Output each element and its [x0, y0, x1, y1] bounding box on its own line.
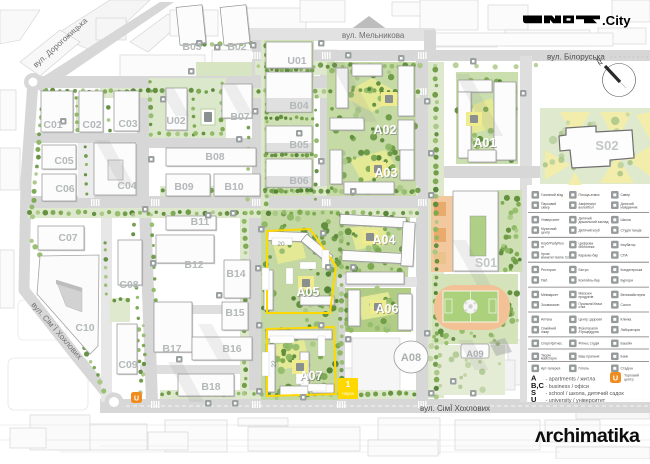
svg-text:B14: B14 [226, 268, 245, 280]
svg-text:майстерні: майстерні [541, 357, 557, 361]
svg-text:.City: .City [602, 13, 631, 28]
svg-text:Сквер: Сквер [621, 193, 631, 197]
svg-text:U02: U02 [166, 115, 185, 127]
svg-text:B10: B10 [224, 181, 243, 193]
svg-text:A03: A03 [375, 166, 398, 180]
svg-text:A06: A06 [376, 302, 399, 316]
svg-text:СПА: СПА [621, 253, 629, 257]
svg-text:C05: C05 [54, 155, 73, 167]
svg-text:S02: S02 [595, 138, 618, 153]
svg-text:Школа: Школа [621, 218, 631, 222]
svg-text:- business / офіси: - business / офіси [546, 384, 589, 390]
svg-text:Караоке-бар: Караоке-бар [579, 253, 599, 257]
svg-text:Клініка: Клініка [621, 318, 632, 322]
svg-text:продуктів: продуктів [579, 295, 594, 299]
svg-text:B04: B04 [289, 100, 308, 112]
svg-text:B09: B09 [174, 181, 193, 193]
svg-text:Басейн: Басейн [621, 342, 633, 346]
svg-text:стка: стка [579, 305, 586, 309]
svg-text:Клуб/PartyRoo: Клуб/PartyRoo [541, 242, 564, 246]
svg-text:Фітнес студія: Фітнес студія [579, 342, 600, 346]
svg-text:Аптека: Аптека [541, 318, 552, 322]
svg-text:A09: A09 [466, 349, 483, 360]
svg-text:Арт-галерея: Арт-галерея [541, 367, 560, 371]
svg-text:B03: B03 [182, 41, 201, 53]
svg-text:Веломайстерня: Веломайстерня [621, 293, 646, 297]
svg-text:Центр здоровя: Центр здоровя [579, 318, 603, 322]
svg-text:Дитячий клуб: Дитячий клуб [579, 229, 600, 233]
svg-text:черга: черга [342, 391, 354, 396]
svg-text:- school / школа, дитячий садо: - school / школа, дитячий садок [546, 390, 625, 397]
svg-text:C03: C03 [118, 118, 137, 130]
svg-text:U: U [613, 374, 618, 383]
svg-text:дошкільний заклад: дошкільний заклад [579, 220, 609, 224]
svg-text:B15: B15 [225, 307, 244, 319]
svg-text:C10: C10 [75, 322, 94, 334]
svg-text:B17: B17 [162, 343, 181, 355]
svg-text:B11: B11 [191, 216, 210, 228]
svg-text:m: m [541, 245, 544, 249]
svg-text:A07: A07 [300, 369, 323, 383]
svg-text:- university / університет: - university / університет [546, 398, 606, 404]
svg-text:вул. СімЇ Хохлових: вул. СімЇ Хохлових [420, 404, 490, 413]
svg-text:Салон: Салон [621, 303, 631, 307]
svg-text:B08: B08 [205, 151, 224, 163]
svg-text:/Процедурна: /Процедурна [579, 330, 599, 334]
svg-text:волейбол: волейбол [579, 206, 594, 210]
svg-text:- apartments / житла: - apartments / житла [546, 377, 596, 383]
svg-text:Студія танців: Студія танців [621, 229, 642, 233]
svg-text:S01: S01 [475, 256, 497, 270]
svg-text:B12: B12 [184, 259, 203, 271]
svg-text:A02: A02 [374, 123, 397, 137]
svg-text:бібліотека: бібліотека [579, 245, 595, 249]
svg-text:Університет: Університет [541, 218, 560, 222]
svg-text:Кондитерська: Кондитерська [621, 268, 643, 272]
svg-text:20: 20 [277, 241, 285, 248]
svg-text:Зоомагазин: Зоомагазин [541, 303, 559, 307]
svg-text:Інкубатор: Інкубатор [621, 243, 636, 247]
svg-text:Ресторан: Ресторан [541, 268, 556, 272]
svg-text:Головний вїзд: Головний вїзд [541, 193, 563, 197]
svg-text:Банк: Банк [621, 355, 629, 359]
svg-text:A08: A08 [401, 352, 421, 364]
svg-text:центр: центр [624, 378, 634, 382]
svg-text:Бургери: Бургери [621, 278, 634, 282]
svg-text:1: 1 [346, 380, 351, 389]
svg-text:Паб: Паб [541, 278, 547, 282]
svg-text:Коктейль-бар: Коктейль-бар [579, 278, 600, 282]
svg-text:Стадіон: Стадіон [621, 367, 633, 371]
svg-text:Ваш пральня: Ваш пральня [579, 355, 600, 359]
svg-text:Спорт/фітнес: Спорт/фітнес [541, 342, 562, 346]
svg-text:майданчик: майданчик [621, 206, 639, 210]
svg-text:B06: B06 [289, 175, 308, 187]
svg-text:ʌrchimatika: ʌrchimatika [535, 425, 641, 447]
svg-text:C01: C01 [43, 119, 62, 131]
svg-text:U01: U01 [287, 55, 306, 67]
svg-text:U: U [134, 396, 139, 403]
svg-text:A01: A01 [474, 136, 497, 150]
svg-text:лікар: лікар [541, 330, 549, 334]
svg-text:вул. Мельникова: вул. Мельникова [342, 31, 405, 40]
svg-text:A05: A05 [297, 285, 320, 299]
svg-text:Площа атмос: Площа атмос [579, 193, 601, 197]
svg-text:C09: C09 [118, 359, 137, 371]
svg-text:C07: C07 [58, 232, 77, 244]
svg-text:B16: B16 [222, 343, 241, 355]
svg-text:Лабораторія: Лабораторія [621, 328, 641, 332]
svg-text:Мінімаркет: Мінімаркет [541, 293, 559, 297]
svg-text:C02: C02 [82, 119, 101, 131]
svg-text:центр: центр [541, 231, 550, 235]
svg-text:C06: C06 [55, 183, 74, 195]
svg-text:U: U [531, 395, 536, 404]
svg-text:Бістро: Бістро [579, 268, 589, 272]
svg-text:Готель: Готель [579, 367, 590, 371]
svg-text:B18: B18 [201, 381, 220, 393]
svg-text:B05: B05 [289, 139, 308, 151]
svg-text:C08: C08 [119, 279, 138, 291]
svg-text:22: 22 [271, 360, 278, 368]
svg-text:B07: B07 [230, 111, 249, 123]
svg-text:B02: B02 [227, 41, 246, 53]
svg-text:C04: C04 [117, 180, 136, 192]
svg-text:сквер: сквер [541, 206, 550, 210]
svg-text:A04: A04 [373, 233, 396, 247]
